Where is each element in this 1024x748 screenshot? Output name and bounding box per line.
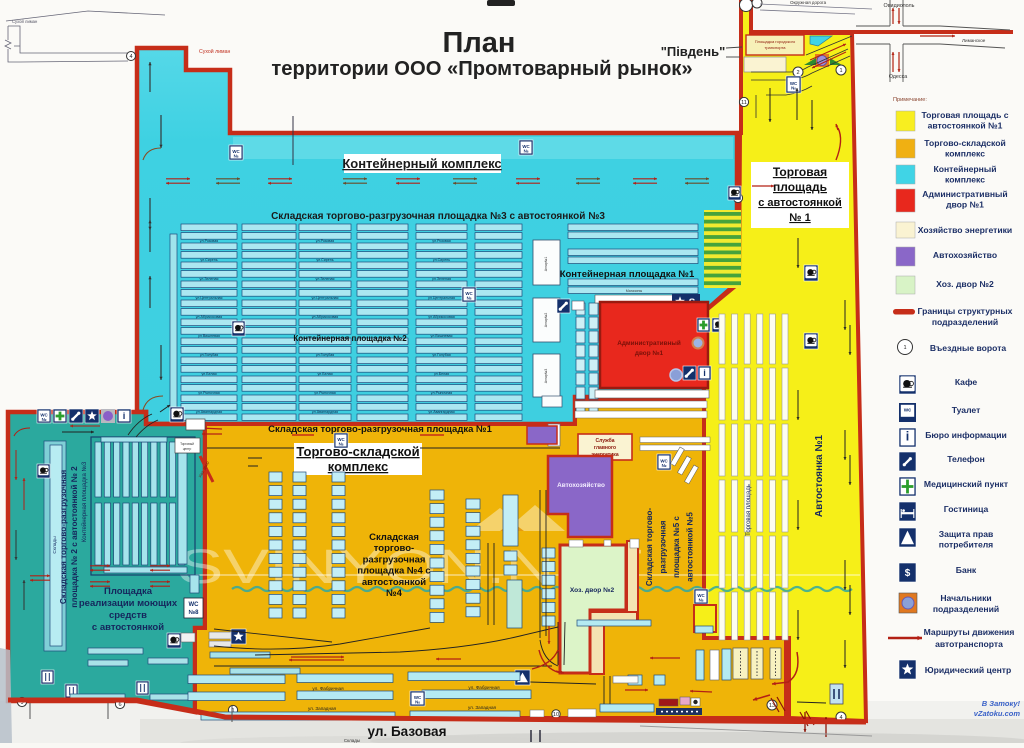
svg-text:ул.Рыночная: ул.Рыночная bbox=[314, 391, 336, 395]
svg-text:площадка № 2 с автостоянкой №: площадка № 2 с автостоянкой № 2 bbox=[70, 466, 79, 608]
svg-text:№: № bbox=[42, 417, 47, 422]
svg-text:ул.Авангардная: ул.Авангардная bbox=[196, 410, 222, 414]
svg-text:Ангар№1: Ангар№1 bbox=[544, 257, 548, 272]
svg-text:автостоянкой №5: автостоянкой №5 bbox=[686, 512, 695, 582]
svg-text:ул.Центральная: ул.Центральная bbox=[428, 296, 455, 300]
svg-text:средств: средств bbox=[109, 610, 147, 621]
svg-text:ул.Авангардная: ул.Авангардная bbox=[428, 410, 454, 414]
svg-text:Площадка городского: Площадка городского bbox=[755, 39, 796, 44]
svg-text:Сухой лиман: Сухой лиман bbox=[12, 19, 38, 24]
svg-text:двор №1: двор №1 bbox=[946, 200, 984, 210]
svg-text:Телефон: Телефон bbox=[947, 454, 985, 464]
svg-text:Примечание:: Примечание: bbox=[893, 97, 927, 103]
svg-text:площадь: площадь bbox=[773, 180, 827, 194]
svg-text:Лиманское: Лиманское bbox=[962, 38, 986, 43]
svg-text:ул.Абрикосовая: ул.Абрикосовая bbox=[196, 315, 223, 319]
svg-text:ул. Фабричная: ул. Фабричная bbox=[312, 686, 344, 691]
svg-text:комплекс: комплекс bbox=[945, 175, 985, 185]
svg-text:потребителя: потребителя bbox=[939, 540, 993, 550]
svg-text:В Затоку!: В Затоку! bbox=[982, 699, 1021, 708]
svg-text:Складская: Складская bbox=[369, 532, 419, 543]
svg-text:Хоз. двор №2: Хоз. двор №2 bbox=[936, 279, 994, 289]
svg-text:Кафе: Кафе bbox=[955, 377, 978, 387]
svg-text:ул.Сирень: ул.Сирень bbox=[316, 258, 333, 262]
svg-text:автостоянкой: автостоянкой bbox=[362, 577, 426, 588]
svg-text:ул.Сирень: ул.Сирень bbox=[433, 258, 450, 262]
svg-text:№: № bbox=[662, 463, 667, 468]
svg-text:1: 1 bbox=[839, 68, 842, 74]
svg-text:i: i bbox=[703, 368, 706, 378]
svg-text:ул. Западная: ул. Западная bbox=[468, 705, 497, 710]
svg-text:№: № bbox=[467, 296, 472, 301]
svg-text:Границы структурных: Границы структурных bbox=[918, 306, 1013, 316]
svg-text:№: № bbox=[699, 598, 704, 603]
svg-text:Административный: Административный bbox=[617, 339, 681, 347]
svg-text:Маршруты движения: Маршруты движения bbox=[924, 627, 1015, 637]
svg-text:Административный: Административный bbox=[922, 189, 1007, 199]
svg-text:№: № bbox=[415, 700, 420, 705]
svg-text:ул.Розовая: ул.Розовая bbox=[316, 239, 334, 243]
svg-text:Бюро информации: Бюро информации bbox=[925, 430, 1007, 440]
svg-text:ул.Рыночная: ул.Рыночная bbox=[198, 391, 220, 395]
svg-text:Контейнерный: Контейнерный bbox=[934, 164, 997, 174]
svg-text:Складская торгово-: Складская торгово- bbox=[645, 508, 654, 587]
svg-text:Складская торгово-разгрузочная: Складская торгово-разгрузочная площадка … bbox=[268, 424, 493, 435]
svg-text:Банк: Банк bbox=[956, 565, 977, 575]
svg-text:ул.Белая: ул.Белая bbox=[434, 372, 449, 376]
svg-text:Овидиополь: Овидиополь bbox=[884, 3, 915, 9]
svg-text:ул.Зеленая: ул.Зеленая bbox=[316, 277, 335, 281]
svg-text:ул. Фабричная: ул. Фабричная bbox=[468, 685, 500, 690]
svg-text:Склады: Склады bbox=[52, 536, 58, 554]
svg-text:Торговая площадь с: Торговая площадь с bbox=[921, 110, 1008, 120]
svg-text:Начальники: Начальники bbox=[940, 593, 991, 603]
svg-text:двор №1: двор №1 bbox=[635, 350, 664, 357]
svg-text:ул.Авангардная: ул.Авангардная bbox=[312, 410, 338, 414]
svg-text:№: № bbox=[791, 86, 796, 91]
svg-text:Медицинский пункт: Медицинский пункт bbox=[924, 479, 1008, 489]
svg-text:реализации моющих: реализации моющих bbox=[79, 598, 178, 609]
svg-text:разгрузочная: разгрузочная bbox=[659, 520, 668, 573]
svg-text:Служба: Служба bbox=[596, 437, 615, 444]
svg-text:ул.Розовая: ул.Розовая bbox=[432, 239, 450, 243]
svg-text:11: 11 bbox=[741, 100, 747, 106]
svg-text:ул.Абрикосовая: ул.Абрикосовая bbox=[312, 315, 339, 319]
svg-text:4: 4 bbox=[129, 54, 132, 60]
svg-text:Торговая площадь: Торговая площадь bbox=[746, 484, 752, 536]
svg-text:Въездные ворота: Въездные ворота bbox=[930, 343, 1007, 353]
svg-text:План: План bbox=[443, 27, 516, 59]
svg-text:2: 2 bbox=[796, 70, 799, 76]
svg-text:Торгово-складской: Торгово-складской bbox=[296, 444, 419, 459]
svg-text:6: 6 bbox=[118, 702, 121, 708]
svg-text:№ 1: № 1 bbox=[789, 212, 810, 224]
svg-text:с автостоянкой: с автостоянкой bbox=[758, 197, 842, 209]
svg-text:с автостоянкой: с автостоянкой bbox=[92, 622, 164, 633]
svg-text:главного: главного bbox=[594, 445, 616, 451]
svg-text:Контейнерная площадка №3: Контейнерная площадка №3 bbox=[81, 461, 88, 542]
svg-text:Торгово-складской: Торгово-складской bbox=[924, 138, 1005, 148]
svg-text:Торговая: Торговая bbox=[773, 165, 827, 179]
svg-text:центр: центр bbox=[183, 447, 192, 451]
svg-text:разгрузочная: разгрузочная bbox=[363, 554, 426, 565]
svg-text:Магазины: Магазины bbox=[626, 289, 643, 293]
svg-text:wc: wc bbox=[903, 408, 911, 414]
svg-text:ул. Западная: ул. Западная bbox=[308, 706, 337, 711]
svg-text:Ангар№2: Ангар№2 bbox=[544, 313, 548, 328]
svg-text:i: i bbox=[906, 430, 909, 444]
svg-text:ул.Голубая: ул.Голубая bbox=[200, 353, 218, 357]
svg-text:ул.Белая: ул.Белая bbox=[317, 372, 332, 376]
svg-text:$: $ bbox=[905, 568, 911, 579]
svg-text:автостоянкой №1: автостоянкой №1 bbox=[928, 121, 1003, 131]
svg-text:i: i bbox=[123, 411, 126, 421]
svg-text:Контейнерная площадка №1: Контейнерная площадка №1 bbox=[560, 269, 695, 280]
svg-text:Сухой лиман: Сухой лиман bbox=[199, 48, 230, 55]
svg-text:площадка №5 с: площадка №5 с bbox=[672, 516, 681, 578]
svg-text:ул.Абрикосовая: ул.Абрикосовая bbox=[428, 315, 455, 319]
svg-text:Автостоянка №1: Автостоянка №1 bbox=[814, 434, 825, 517]
svg-text:ул.Сирень: ул.Сирень bbox=[200, 258, 217, 262]
svg-text:№4: №4 bbox=[386, 588, 403, 599]
svg-text:ул.Вишневая: ул.Вишневая bbox=[431, 334, 453, 338]
svg-text:Гостиница: Гостиница bbox=[944, 504, 989, 514]
svg-text:№: № bbox=[234, 154, 239, 159]
svg-text:ул.Центральная: ул.Центральная bbox=[312, 296, 339, 300]
svg-text:WC: WC bbox=[189, 602, 200, 608]
svg-text:Склады: Склады bbox=[344, 738, 360, 743]
svg-text:Площадка: Площадка bbox=[104, 586, 153, 597]
svg-text:№8: №8 bbox=[188, 609, 199, 616]
svg-text:Складская торгово-разгрузочная: Складская торгово-разгрузочная площадка … bbox=[271, 211, 605, 222]
svg-text:vZatoku.com: vZatoku.com bbox=[974, 709, 1021, 718]
svg-text:территории ООО «Промтоварный р: территории ООО «Промтоварный рынок» bbox=[271, 58, 692, 80]
svg-text:ул.Голубая: ул.Голубая bbox=[432, 353, 450, 357]
svg-text:ул.Рыночная: ул.Рыночная bbox=[431, 391, 453, 395]
svg-text:ул.Зеленая: ул.Зеленая bbox=[200, 277, 219, 281]
svg-text:Торговый: Торговый bbox=[180, 442, 194, 446]
svg-text:автотранспорта: автотранспорта bbox=[935, 639, 1003, 649]
svg-text:№: № bbox=[339, 442, 344, 447]
svg-text:ул.Голубая: ул.Голубая bbox=[316, 353, 334, 357]
svg-text:Хоз. двор №2: Хоз. двор №2 bbox=[570, 587, 615, 594]
svg-text:Автохозяйство: Автохозяйство bbox=[933, 250, 997, 260]
svg-text:ул.Центральная: ул.Центральная bbox=[196, 296, 223, 300]
svg-text:Хозяйство энергетики: Хозяйство энергетики bbox=[918, 225, 1012, 235]
svg-text:площадка №4 с: площадка №4 с bbox=[357, 566, 430, 577]
svg-text:Защита прав: Защита прав bbox=[939, 529, 994, 539]
svg-text:Юридический центр: Юридический центр bbox=[925, 665, 1012, 675]
svg-text:ул.Зеленая: ул.Зеленая bbox=[432, 277, 451, 281]
svg-text:Туалет: Туалет bbox=[952, 405, 981, 415]
svg-text:ул.Белая: ул.Белая bbox=[201, 372, 216, 376]
svg-text:подразделений: подразделений bbox=[932, 317, 998, 327]
svg-text:подразделений: подразделений bbox=[933, 604, 999, 614]
svg-text:№: № bbox=[524, 149, 529, 154]
svg-text:Складская торгово-разгрузочная: Складская торгово-разгрузочная bbox=[59, 470, 68, 604]
svg-text:"Південь": "Південь" bbox=[661, 44, 726, 59]
svg-text:Окружная дорога: Окружная дорога bbox=[790, 0, 827, 5]
svg-text:Ангар№3: Ангар№3 bbox=[544, 369, 548, 384]
svg-text:ул.Вишневая: ул.Вишневая bbox=[198, 334, 220, 338]
svg-text:Контейнерная площадка №2: Контейнерная площадка №2 bbox=[293, 334, 407, 343]
svg-text:ул. Базовая: ул. Базовая bbox=[368, 724, 447, 739]
svg-text:1: 1 bbox=[903, 345, 906, 351]
svg-text:ул.Розовая: ул.Розовая bbox=[200, 239, 218, 243]
svg-text:комплекс: комплекс bbox=[945, 149, 985, 159]
svg-text:торгово-: торгово- bbox=[374, 543, 414, 554]
svg-text:транспорта: транспорта bbox=[764, 45, 786, 50]
svg-text:Контейнерный комплекс: Контейнерный комплекс bbox=[342, 156, 501, 171]
svg-text:Одесса: Одесса bbox=[889, 74, 908, 80]
svg-text:Автохозяйство: Автохозяйство bbox=[557, 481, 605, 489]
